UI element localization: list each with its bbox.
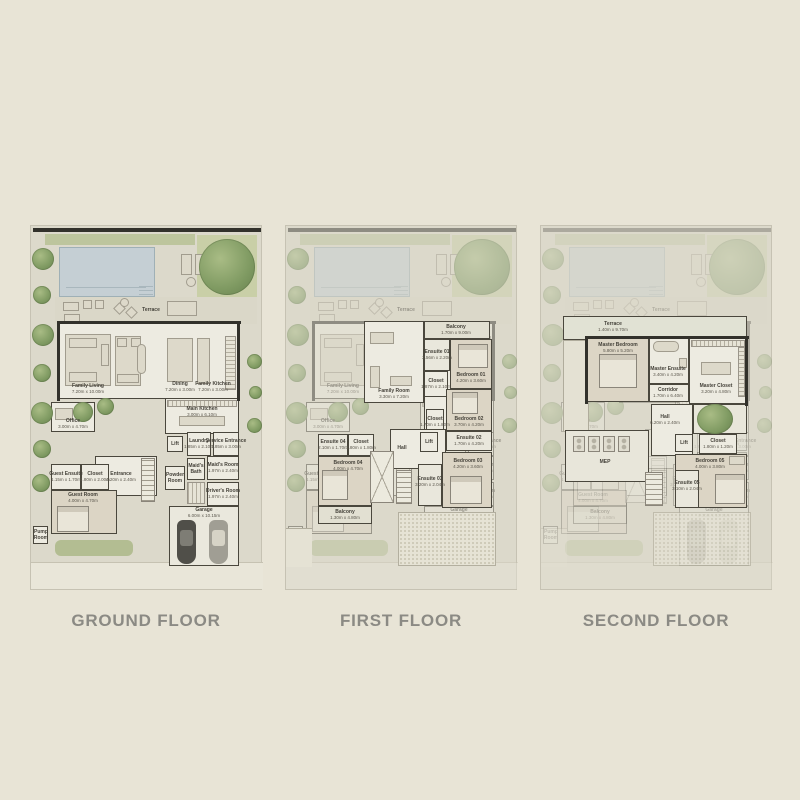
house-wall [57, 321, 241, 324]
label-office: Office3.00m x 4.70m [58, 418, 88, 430]
room-dims: 4.00m x 4.70m [68, 498, 98, 504]
label-master-bedroom: Master Bedroom5.80m x 5.20m [598, 342, 637, 354]
label-guest-room: Guest Room4.00m x 4.70m [68, 492, 98, 504]
room-dims: 1.15m x 1.70m [49, 477, 83, 483]
street [31, 562, 263, 589]
label-ensuite-03: Ensuite 033.20m x 2.04m [415, 476, 445, 488]
label-lift: Lift [171, 441, 179, 447]
room-dims: 1.30m x 4.80m [330, 515, 360, 521]
ac-unit [573, 436, 585, 452]
room-dims: 2.56m x 2.20m [422, 355, 452, 361]
second-floor-title: SECOND FLOOR [540, 611, 772, 631]
room-dims: 3.00m x 4.70m [58, 424, 88, 430]
label-corridor: Corridor1.70m x 6.40m [653, 387, 683, 399]
closet-island [701, 362, 731, 375]
floor-plan-first[interactable]: Terrace Family Living7.20m x 10.00m Dini… [285, 225, 517, 590]
tree [247, 418, 262, 433]
sofa [390, 376, 412, 386]
tree [247, 354, 262, 369]
staircase [396, 470, 412, 504]
tree [33, 364, 51, 382]
house-wall [745, 336, 748, 406]
label-bedroom-02: Bedroom 023.70m x 4.20m [454, 416, 484, 428]
label-hall: Hall [397, 445, 406, 451]
bed [450, 476, 482, 504]
sofa [101, 344, 109, 366]
bed [599, 354, 637, 388]
house-wall [57, 321, 60, 401]
boundary-wall [33, 228, 261, 232]
room-dims: 4.20m x 3.60m [456, 378, 486, 384]
sofa [69, 338, 97, 348]
sun-lounger [181, 254, 192, 275]
hedge [55, 540, 133, 556]
brochure-page: Terrace Family Living7.20m x 10.00m Dini… [0, 0, 800, 800]
room-dims: 1.97m x 2.40m [206, 494, 240, 500]
courtyard-tree [97, 398, 114, 415]
room-dims: 1.70m x 6.40m [653, 393, 683, 399]
room-name: Terrace [142, 307, 160, 313]
house-wall [585, 336, 588, 404]
tree [32, 324, 54, 346]
room-dims: 6.00m x 10.15m [188, 513, 220, 519]
ac-unit [603, 436, 615, 452]
tree [33, 286, 51, 304]
label-balcony-front: Balcony1.70m x 9.00m [441, 324, 471, 336]
double-height-void [370, 451, 394, 503]
kitchen-island [197, 338, 210, 384]
bed [715, 474, 745, 504]
car-roof [180, 530, 193, 546]
flat-roof [286, 528, 312, 567]
staircase [645, 472, 663, 506]
label-pump-room: Pump Room [31, 529, 51, 542]
wardrobe [738, 347, 745, 397]
room-dims: 4.20m x 2.40m [106, 477, 136, 483]
room-name: Lift [680, 440, 688, 446]
room-dims: 1.70m x 9.00m [441, 330, 471, 336]
label-bedroom-05: Bedroom 054.00m x 3.80m [695, 458, 725, 470]
tree [249, 386, 262, 399]
room-dims: 7.20m x 10.00m [72, 389, 104, 395]
room-dims: 3.20m x 2.04m [415, 482, 445, 488]
room-dims: 3.10m x 2.04m [672, 486, 702, 492]
flat-roof [398, 512, 496, 566]
shaft [187, 482, 205, 504]
label-lift-2: Lift [680, 440, 688, 446]
outdoor-dining-table [167, 301, 197, 316]
label-maids-room: Maid's Room1.97m x 2.40m [208, 462, 239, 474]
label-mep: MEP [600, 459, 611, 465]
house-wall [237, 321, 240, 401]
label-hall-2: Hall6.20m x 2.40m [650, 414, 680, 426]
pool-steps [139, 283, 153, 295]
label-master-closet: Master Closet3.20m x 4.80m [700, 383, 733, 395]
label-family-kitchen: Family Kitchen7.20m x 3.00m [195, 381, 231, 393]
sofa [117, 374, 139, 383]
first-floor-drawing: Family Room3.30m x 7.20m Balcony1.70m x … [286, 226, 516, 589]
room-dims: 2.10m x 1.70m [318, 445, 348, 451]
staircase [141, 458, 155, 502]
outdoor-chair [95, 300, 104, 309]
room-dims: 6.20m x 2.40m [650, 420, 680, 426]
label-master-ensuite: Master Ensuite3.40m x 4.20m [650, 366, 686, 378]
label-terrace-2: Terrace1.40m x 9.70m [598, 321, 628, 333]
label-closet-02: Closet1.70m x 1.80m [420, 416, 450, 428]
label-closet-04: Closet1.80m x 1.80m [346, 439, 376, 451]
label-family-room: Family Room3.30m x 7.20m [378, 388, 409, 400]
bathtub [653, 341, 679, 352]
bed [458, 344, 488, 368]
label-powder-room: Powder Room [165, 472, 185, 485]
curved-sofa [137, 344, 146, 374]
room-dims: 1.70m x 4.20m [454, 441, 484, 447]
room-name: Lift [425, 439, 433, 445]
room-dims: 1.97m x 2.40m [208, 468, 239, 474]
outdoor-round-table [120, 298, 129, 307]
room-dims: 1.70m x 1.80m [420, 422, 450, 428]
label-main-kitchen: Main Kitchen3.00m x 6.10m [186, 406, 217, 418]
label-ensuite-02: Ensuite 021.70m x 4.20m [454, 435, 484, 447]
room-name: Pump Room [31, 529, 51, 542]
room-dims: 3.40m x 4.20m [650, 372, 686, 378]
room-name: Powder Room [165, 472, 185, 485]
ground-floor-title: GROUND FLOOR [30, 611, 262, 631]
pool-edge-line [66, 287, 146, 288]
label-balcony-rear: Balcony1.30m x 4.80m [330, 509, 360, 521]
outdoor-round-table [186, 277, 196, 287]
label-closet-05: Closet1.80m x 1.20m [703, 438, 733, 450]
room-dims: 1.80m x 2.00m [80, 477, 110, 483]
label-entrance: Entrance4.20m x 2.40m [106, 471, 136, 483]
label-ensuite-05: Ensuite 053.10m x 2.04m [672, 480, 702, 492]
room-dims: 4.00m x 3.80m [695, 464, 725, 470]
ground-floor-drawing: Terrace Family Living7.20m x 10.00m Dini… [31, 226, 261, 589]
room-name: Hall [397, 445, 406, 451]
room-name: Maid's Bath [186, 463, 206, 476]
sofa [370, 366, 380, 388]
bed [322, 470, 348, 500]
room-dims: 4.20m x 3.60m [453, 464, 483, 470]
house-wall [585, 336, 749, 339]
sofa [69, 372, 97, 382]
label-service-entrance: Service Entrance1.85m x 3.00m [206, 438, 247, 450]
tree [32, 248, 54, 270]
label-ensuite-01: Ensuite 012.56m x 2.20m [422, 349, 452, 361]
tree [33, 440, 51, 458]
tree [31, 402, 53, 424]
tree [32, 474, 50, 492]
bed [57, 506, 89, 532]
label-closet-01: Closet1.87m x 2.10m [421, 378, 451, 390]
void-tree [697, 404, 733, 434]
room-dims: 5.80m x 5.20m [598, 348, 637, 354]
room-dims: 1.85m x 3.00m [206, 444, 247, 450]
room-dims: 3.20m x 4.80m [700, 389, 733, 395]
ac-unit [618, 436, 630, 452]
floor-plan-second[interactable]: Terrace Family Living7.20m x 10.00m Dini… [540, 225, 772, 590]
label-maids-bath: Maid's Bath [186, 463, 206, 476]
room-dims: 3.70m x 4.20m [454, 422, 484, 428]
label-dining: Dining7.20m x 3.00m [165, 381, 195, 393]
ac-unit [588, 436, 600, 452]
label-bedroom-01: Bedroom 014.20m x 3.60m [456, 372, 486, 384]
armchair [117, 338, 127, 347]
dining-table [167, 338, 193, 382]
room-dims: 4.00m x 4.70m [333, 466, 363, 472]
sofa [370, 332, 394, 344]
first-floor-title: FIRST FLOOR [285, 611, 517, 631]
room-dims: 3.00m x 6.10m [186, 412, 217, 418]
label-lift: Lift [425, 439, 433, 445]
flat-roof [653, 512, 751, 566]
label-garage: Garage6.00m x 10.15m [188, 507, 220, 519]
room-dims: 1.80m x 1.80m [346, 445, 376, 451]
room-dims: 1.40m x 9.70m [598, 327, 628, 333]
room-dims: 7.20m x 3.00m [165, 387, 195, 393]
room-dims: 7.20m x 3.00m [195, 387, 231, 393]
label-guest-ensuite: Guest Ensuite1.15m x 1.70m [49, 471, 83, 483]
label-family-living: Family Living7.20m x 10.00m [72, 383, 104, 395]
label-bedroom-04: Bedroom 044.00m x 4.70m [333, 460, 363, 472]
room-dims: 1.80m x 1.20m [703, 444, 733, 450]
label-ensuite-04: Ensuite 042.10m x 1.70m [318, 439, 348, 451]
label-drivers-room: Driver's Room1.97m x 2.40m [206, 488, 240, 500]
label-terrace: Terrace [142, 307, 160, 313]
big-tree [199, 239, 255, 295]
outdoor-chair [83, 300, 92, 309]
bed [452, 392, 478, 414]
wardrobe [691, 340, 745, 347]
room-dims: 3.30m x 7.20m [378, 394, 409, 400]
pool [59, 247, 155, 297]
desk [729, 456, 745, 465]
second-floor-drawing: Terrace1.40m x 9.70m Master Bedroom5.80m… [541, 226, 771, 589]
hedge [45, 234, 195, 245]
label-bedroom-03: Bedroom 034.20m x 3.60m [453, 458, 483, 470]
floor-plan-ground[interactable]: Terrace Family Living7.20m x 10.00m Dini… [30, 225, 262, 590]
room-name: MEP [600, 459, 611, 465]
room-dims: 1.87m x 2.10m [421, 384, 451, 390]
room-name: Lift [171, 441, 179, 447]
outdoor-sofa [63, 302, 79, 311]
car-roof [212, 530, 225, 546]
label-closet: Closet1.80m x 2.00m [80, 471, 110, 483]
